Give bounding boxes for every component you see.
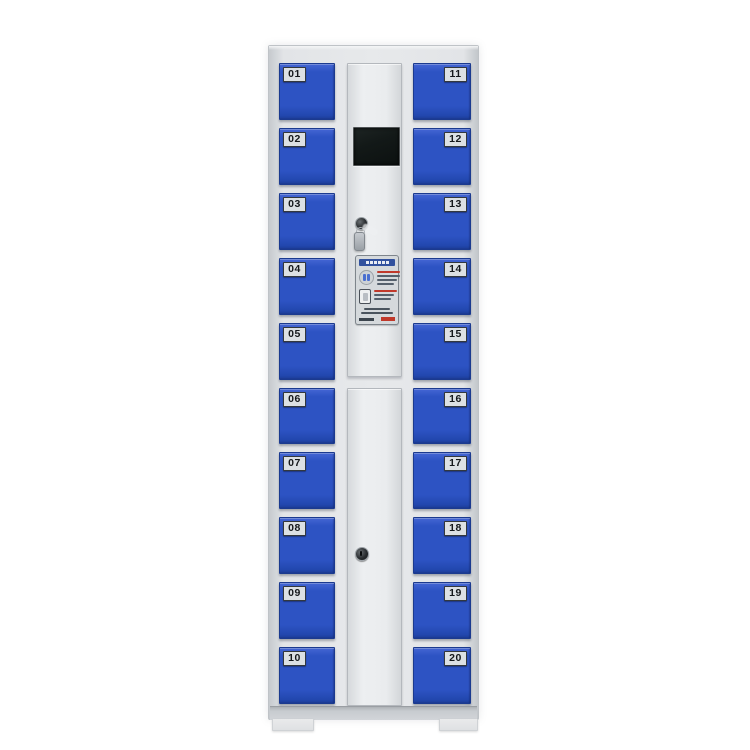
cabinet-foot-right (439, 719, 478, 731)
cabinet-foot-left (272, 719, 314, 731)
door-number-plate: 14 (444, 262, 467, 277)
instruction-sticker (355, 255, 399, 325)
sticker-title-bar (359, 259, 395, 266)
locker-door-08: 08 (279, 517, 335, 574)
locker-door-06: 06 (279, 388, 335, 445)
keyhole-icon (355, 547, 369, 561)
door-number-plate: 13 (444, 197, 467, 212)
product-photo-scene: 01020304050607080910 (0, 0, 750, 750)
locker-door-18: 18 (413, 517, 471, 574)
door-number-plate: 06 (283, 392, 306, 407)
door-number-plate: 03 (283, 197, 306, 212)
door-number-plate: 11 (444, 67, 467, 82)
sticker-text-lines (374, 289, 397, 300)
sticker-row-2 (359, 289, 395, 304)
door-number-plate: 08 (283, 521, 306, 536)
door-number-plate: 12 (444, 132, 467, 147)
lower-service-door (347, 388, 402, 706)
control-column (346, 63, 403, 704)
right-door-column: 11121314151617181920 (413, 63, 471, 704)
left-door-column: 01020304050607080910 (279, 63, 335, 704)
door-number-plate: 04 (283, 262, 306, 277)
locker-door-10: 10 (279, 647, 335, 704)
sticker-text-lines (377, 270, 400, 285)
locker-door-01: 01 (279, 63, 335, 120)
locker-door-07: 07 (279, 452, 335, 509)
door-number-plate: 07 (283, 456, 306, 471)
sticker-row-1 (359, 270, 395, 285)
door-number-plate: 18 (444, 521, 467, 536)
locker-door-03: 03 (279, 193, 335, 250)
locker-door-16: 16 (413, 388, 471, 445)
phone-icon (359, 289, 371, 304)
lcd-display-screen (353, 127, 400, 166)
locker-door-13: 13 (413, 193, 471, 250)
hanging-keys (354, 232, 365, 251)
locker-door-15: 15 (413, 323, 471, 380)
door-number-plate: 19 (444, 586, 467, 601)
locker-door-17: 17 (413, 452, 471, 509)
control-panel-door (347, 63, 402, 377)
locker-door-20: 20 (413, 647, 471, 704)
sticker-footer-lines (359, 308, 395, 314)
card-reader-icon (359, 270, 374, 285)
locker-door-19: 19 (413, 582, 471, 639)
door-number-plate: 01 (283, 67, 306, 82)
door-number-plate: 10 (283, 651, 306, 666)
locker-door-02: 02 (279, 128, 335, 185)
locker-door-05: 05 (279, 323, 335, 380)
door-number-plate: 16 (444, 392, 467, 407)
locker-door-04: 04 (279, 258, 335, 315)
locker-door-12: 12 (413, 128, 471, 185)
door-number-plate: 05 (283, 327, 306, 342)
door-number-plate: 02 (283, 132, 306, 147)
locker-door-11: 11 (413, 63, 471, 120)
locker-cabinet: 01020304050607080910 (268, 45, 479, 720)
door-number-plate: 17 (444, 456, 467, 471)
locker-door-09: 09 (279, 582, 335, 639)
locker-door-14: 14 (413, 258, 471, 315)
door-number-plate: 20 (444, 651, 467, 666)
sticker-bottom-row (359, 317, 395, 321)
kick-plate-base (270, 706, 477, 720)
door-number-plate: 15 (444, 327, 467, 342)
door-number-plate: 09 (283, 586, 306, 601)
